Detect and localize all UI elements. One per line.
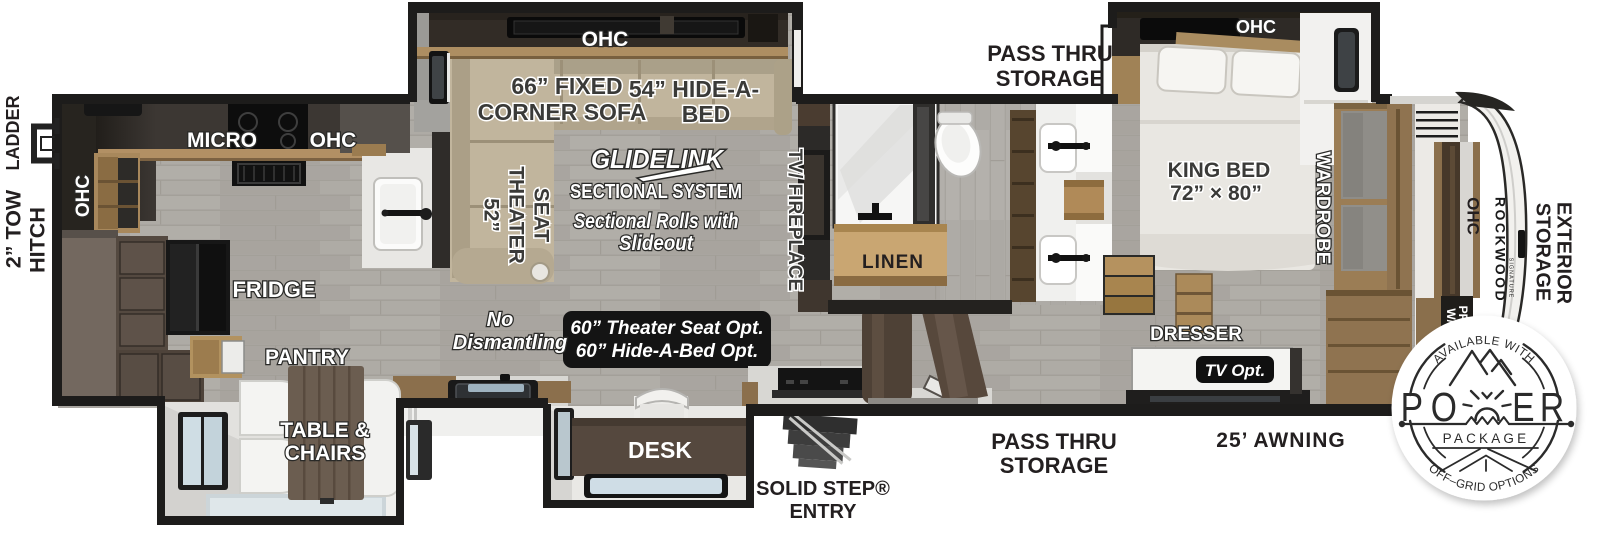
svg-text:OHC: OHC: [1236, 17, 1276, 37]
svg-text:STORAGE: STORAGE: [1000, 453, 1108, 478]
svg-text:Slideout: Slideout: [619, 232, 694, 255]
svg-text:TV Opt.: TV Opt.: [1205, 361, 1265, 380]
svg-text:WARDROBE: WARDROBE: [1312, 152, 1333, 265]
svg-text:R: R: [1540, 384, 1564, 430]
svg-text:25’ AWNING: 25’ AWNING: [1216, 429, 1345, 452]
svg-text:OHC: OHC: [310, 129, 357, 152]
svg-text:TABLE &: TABLE &: [280, 419, 369, 442]
svg-text:CHAIRS: CHAIRS: [285, 442, 366, 465]
svg-text:66” FIXED: 66” FIXED: [511, 73, 622, 99]
svg-text:ROCKWOOD: ROCKWOOD: [1492, 197, 1508, 303]
svg-text:FRIDGE: FRIDGE: [232, 277, 315, 302]
svg-text:TV/ FIREPLACE: TV/ FIREPLACE: [784, 149, 805, 292]
svg-text:72” × 80”: 72” × 80”: [1170, 182, 1262, 205]
svg-text:PASS THRU: PASS THRU: [987, 41, 1113, 66]
svg-text:SOLID STEP®: SOLID STEP®: [756, 478, 890, 500]
svg-text:O: O: [1431, 384, 1457, 430]
svg-text:THEATER: THEATER: [504, 166, 527, 264]
svg-text:OHC: OHC: [1464, 197, 1483, 235]
svg-text:CORNER SOFA: CORNER SOFA: [478, 99, 647, 125]
svg-text:54” HIDE-A-: 54” HIDE-A-: [629, 76, 759, 102]
svg-text:KING BED: KING BED: [1168, 159, 1271, 182]
svg-text:52”: 52”: [479, 198, 502, 232]
svg-text:2” TOW: 2” TOW: [2, 189, 26, 268]
svg-text:SIGNATURE: SIGNATURE: [1508, 258, 1514, 299]
svg-text:DESK: DESK: [628, 437, 692, 463]
svg-text:STORAGE: STORAGE: [996, 66, 1104, 91]
svg-text:MICRO: MICRO: [187, 129, 257, 152]
svg-text:60” Theater Seat Opt.: 60” Theater Seat Opt.: [570, 318, 763, 339]
svg-text:OHC: OHC: [582, 28, 629, 51]
svg-text:LINEN: LINEN: [862, 252, 924, 273]
svg-text:SEAT: SEAT: [529, 188, 552, 243]
svg-text:HITCH: HITCH: [26, 207, 50, 273]
svg-text:PASS THRU: PASS THRU: [991, 429, 1117, 454]
svg-text:PANTRY: PANTRY: [265, 346, 349, 369]
svg-text:EXTERIOR: EXTERIOR: [1553, 202, 1575, 305]
svg-text:E: E: [1512, 384, 1534, 430]
svg-text:ENTRY: ENTRY: [789, 501, 857, 523]
svg-text:Dismantling: Dismantling: [453, 332, 567, 354]
svg-text:No: No: [487, 309, 514, 331]
svg-text:OHC: OHC: [73, 175, 94, 218]
svg-text:STORAGE: STORAGE: [1532, 203, 1554, 302]
svg-text:Sectional Rolls with: Sectional Rolls with: [574, 210, 739, 233]
svg-text:PACKAGE: PACKAGE: [1443, 431, 1530, 446]
svg-text:LADDER: LADDER: [3, 96, 23, 171]
svg-text:DRESSER: DRESSER: [1150, 324, 1242, 345]
svg-text:SECTIONAL SYSTEM: SECTIONAL SYSTEM: [570, 180, 742, 203]
svg-text:60” Hide-A-Bed Opt.: 60” Hide-A-Bed Opt.: [576, 341, 759, 362]
svg-text:BED: BED: [682, 101, 731, 127]
svg-text:P: P: [1401, 384, 1423, 430]
